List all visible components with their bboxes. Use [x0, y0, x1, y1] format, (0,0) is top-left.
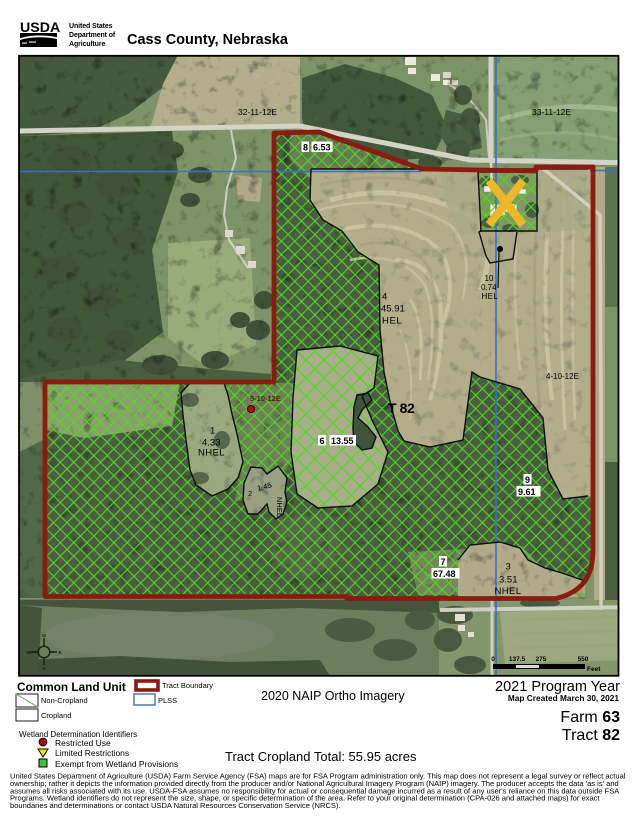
svg-text:275: 275 — [536, 656, 547, 663]
svg-text:boundaries and determinations: boundaries and determinations or contact… — [10, 801, 341, 810]
svg-text:5-10-12E: 5-10-12E — [250, 394, 281, 403]
svg-text:Restricted Use: Restricted Use — [55, 738, 111, 748]
svg-text:NHEL: NHEL — [275, 497, 284, 517]
svg-text:3.51: 3.51 — [499, 575, 518, 586]
svg-text:United States: United States — [69, 23, 113, 30]
svg-text:67.48: 67.48 — [433, 569, 456, 579]
svg-text:9: 9 — [525, 475, 530, 485]
svg-text:33-11-12E: 33-11-12E — [532, 107, 571, 117]
svg-text:7: 7 — [441, 557, 446, 567]
svg-text:32-11-12E: 32-11-12E — [238, 107, 277, 117]
svg-text:9.61: 9.61 — [518, 487, 536, 497]
svg-text:W: W — [27, 650, 32, 655]
svg-text:2: 2 — [248, 489, 252, 498]
svg-text:Common Land Unit: Common Land Unit — [17, 680, 126, 694]
svg-text:Cass County, Nebraska: Cass County, Nebraska — [127, 32, 289, 48]
svg-text:0.74: 0.74 — [481, 283, 497, 292]
svg-text:137.5: 137.5 — [509, 656, 526, 663]
svg-text:Tract Cropland Total: 55.95 a: Tract Cropland Total: 55.95 acres — [225, 749, 417, 764]
svg-text:2020 NAIP Ortho Imagery: 2020 NAIP Ortho Imagery — [261, 689, 405, 703]
svg-text:550: 550 — [578, 656, 589, 663]
svg-text:PLSS: PLSS — [158, 696, 177, 705]
svg-text:6.53: 6.53 — [313, 143, 331, 153]
svg-text:8: 8 — [303, 143, 308, 153]
svg-text:13.55: 13.55 — [331, 436, 354, 446]
svg-text:E: E — [58, 650, 61, 655]
svg-text:3: 3 — [506, 562, 511, 573]
svg-text:Exempt from Wetland Provisions: Exempt from Wetland Provisions — [55, 759, 178, 769]
svg-text:HEL: HEL — [482, 292, 499, 301]
svg-text:Tract 82: Tract 82 — [562, 727, 620, 744]
svg-text:Non-Cropland: Non-Cropland — [41, 696, 88, 705]
svg-text:45.91: 45.91 — [381, 304, 405, 315]
svg-text:HEL: HEL — [382, 316, 402, 327]
svg-text:NHEL: NHEL — [198, 448, 225, 459]
svg-text:0: 0 — [491, 656, 495, 663]
svg-text:6: 6 — [320, 436, 325, 446]
svg-text:Agriculture: Agriculture — [69, 41, 105, 48]
svg-text:T 82: T 82 — [388, 400, 415, 416]
svg-text:Cropland: Cropland — [41, 711, 71, 720]
svg-text:10: 10 — [485, 274, 494, 283]
svg-text:1: 1 — [210, 426, 215, 437]
svg-text:Department of: Department of — [69, 32, 116, 39]
svg-text:Map Created March 30, 2021: Map Created March 30, 2021 — [508, 693, 620, 703]
svg-text:4: 4 — [382, 292, 387, 303]
svg-text:Limited Restrictions: Limited Restrictions — [55, 748, 129, 758]
svg-text:NHEL: NHEL — [495, 586, 522, 597]
svg-text:S: S — [42, 666, 45, 671]
svg-text:Tract Boundary: Tract Boundary — [162, 681, 213, 690]
svg-text:4-10-12E: 4-10-12E — [546, 372, 579, 381]
svg-text:Feet: Feet — [587, 666, 601, 673]
svg-text:Farm 63: Farm 63 — [560, 709, 620, 726]
